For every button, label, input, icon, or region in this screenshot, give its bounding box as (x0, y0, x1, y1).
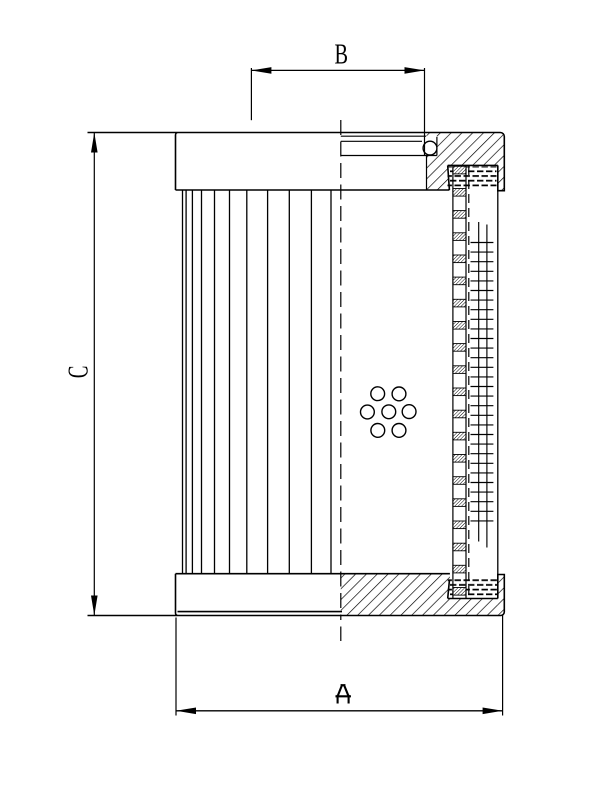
svg-text:B: B (334, 39, 348, 70)
svg-text:C: C (63, 366, 94, 379)
